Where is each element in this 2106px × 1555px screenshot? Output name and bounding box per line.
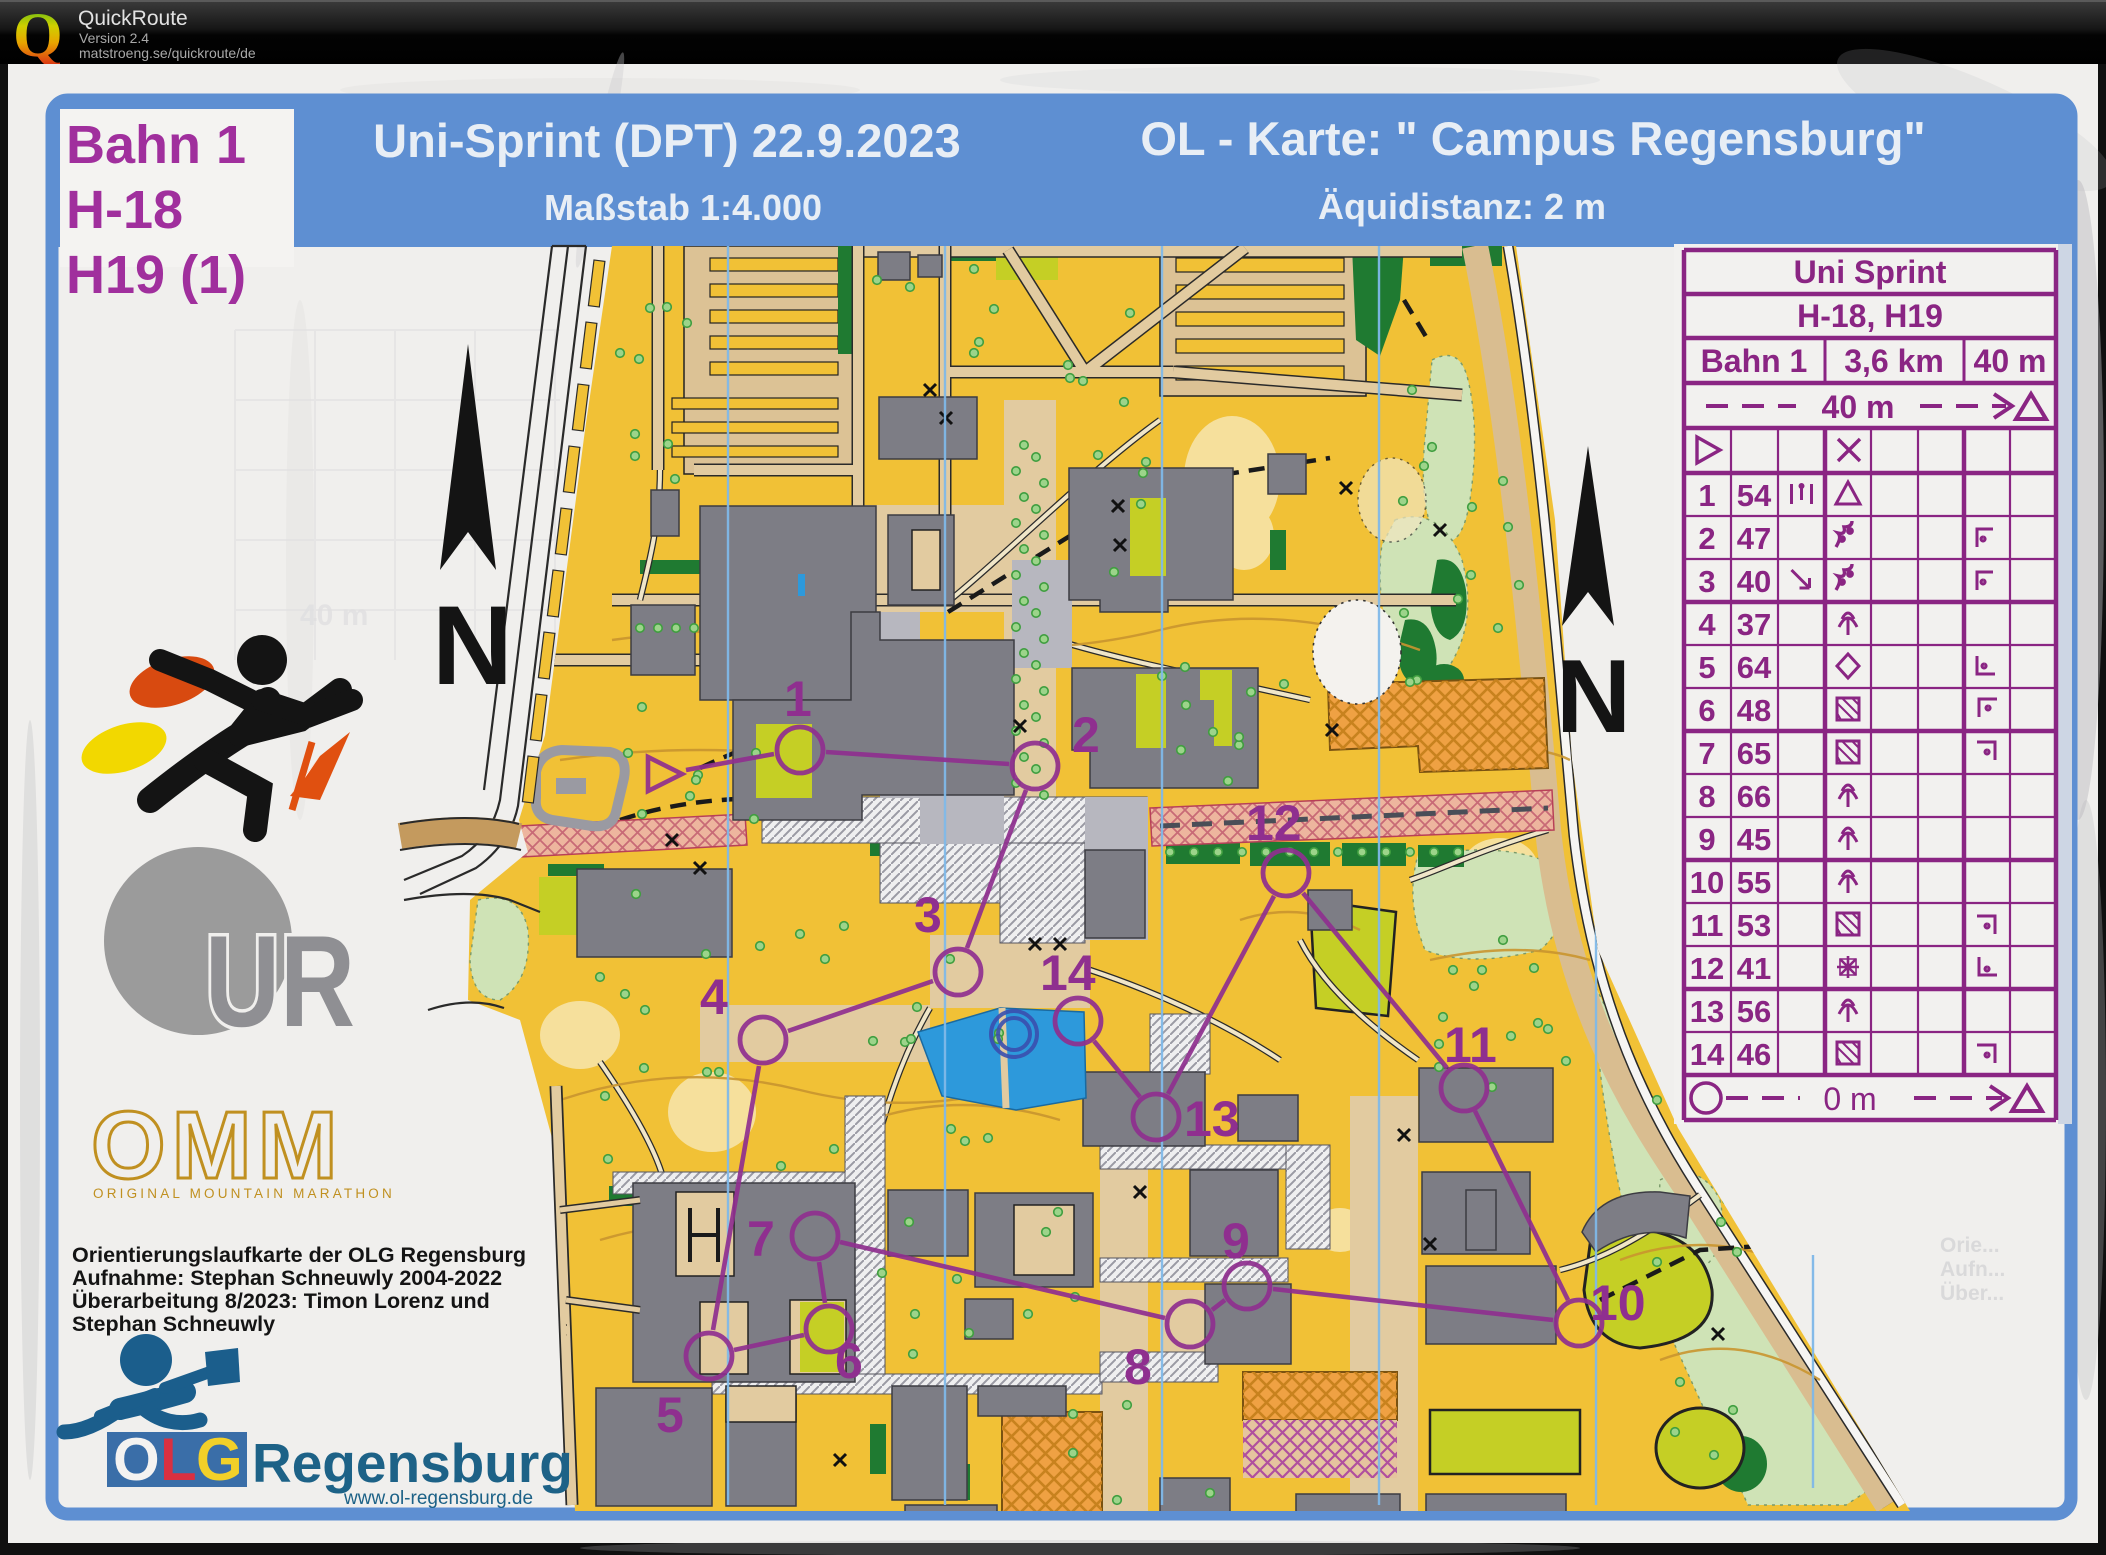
- svg-text:Bahn 1: Bahn 1: [1701, 343, 1808, 379]
- svg-text:14: 14: [1040, 945, 1096, 1001]
- svg-text:Aufnahme: Stephan Schneuwly 20: Aufnahme: Stephan Schneuwly 2004-2022: [72, 1266, 502, 1290]
- svg-text:Bahn 1: Bahn 1: [66, 115, 246, 175]
- svg-text:8: 8: [1698, 779, 1715, 814]
- svg-text:54: 54: [1737, 478, 1772, 513]
- svg-text:Stephan Schneuwly: Stephan Schneuwly: [72, 1312, 275, 1336]
- svg-text:Über...: Über...: [1940, 1282, 2004, 1305]
- svg-text:66: 66: [1737, 779, 1771, 814]
- svg-text:matstroeng.se/quickroute/de: matstroeng.se/quickroute/de: [79, 45, 256, 61]
- svg-text:Orie...: Orie...: [1940, 1234, 2000, 1257]
- svg-text:Aufn...: Aufn...: [1940, 1258, 2005, 1281]
- svg-text:4: 4: [700, 969, 728, 1025]
- svg-text:Überarbeitung 8/2023: Timon L: Überarbeitung 8/2023: Timon Lorenz und: [72, 1288, 490, 1313]
- svg-text:55: 55: [1737, 865, 1771, 900]
- svg-text:G: G: [196, 1426, 243, 1493]
- svg-text:Äquidistanz: 2 m: Äquidistanz: 2 m: [1318, 186, 1606, 227]
- svg-text:10: 10: [1690, 865, 1724, 900]
- svg-text:2: 2: [1698, 521, 1715, 556]
- svg-text:9: 9: [1222, 1213, 1250, 1269]
- svg-text:7: 7: [1698, 736, 1715, 771]
- svg-text:11: 11: [1444, 1017, 1497, 1073]
- svg-text:46: 46: [1737, 1037, 1771, 1072]
- svg-text:3,6 km: 3,6 km: [1844, 343, 1944, 379]
- svg-text:2: 2: [1072, 707, 1100, 763]
- svg-text:47: 47: [1737, 521, 1771, 556]
- svg-text:41: 41: [1737, 951, 1771, 986]
- svg-text:H-18: H-18: [66, 180, 183, 240]
- svg-text:5: 5: [656, 1387, 684, 1443]
- svg-text:12: 12: [1246, 795, 1302, 851]
- svg-text:11: 11: [1691, 908, 1724, 943]
- svg-text:N: N: [1556, 639, 1631, 755]
- svg-text:37: 37: [1737, 607, 1771, 642]
- svg-text:40: 40: [1737, 564, 1771, 599]
- svg-text:40 m: 40 m: [1974, 343, 2047, 379]
- svg-text:40 m: 40 m: [1822, 389, 1895, 425]
- svg-text:4: 4: [1698, 607, 1716, 642]
- svg-text:14: 14: [1690, 1037, 1725, 1072]
- svg-text:5: 5: [1698, 650, 1715, 685]
- svg-text:OMM: OMM: [91, 1092, 344, 1199]
- svg-text:9: 9: [1698, 822, 1715, 857]
- svg-text:Orientierungslaufkarte der OLG: Orientierungslaufkarte der OLG Regensbur…: [72, 1243, 526, 1267]
- svg-text:Uni-Sprint (DPT) 22.9.2023: Uni-Sprint (DPT) 22.9.2023: [373, 114, 961, 167]
- svg-text:OL - Karte: " Campus Regensbur: OL - Karte: " Campus Regensburg": [1140, 112, 1925, 165]
- svg-text:6: 6: [835, 1333, 863, 1389]
- svg-text:Version 2.4: Version 2.4: [79, 30, 149, 46]
- svg-text:3: 3: [1698, 564, 1715, 599]
- svg-text:53: 53: [1737, 908, 1771, 943]
- svg-text:10: 10: [1590, 1275, 1646, 1331]
- svg-text:Maßstab 1:4.000: Maßstab 1:4.000: [544, 187, 822, 228]
- svg-text:1: 1: [1698, 478, 1715, 513]
- svg-text:N: N: [432, 583, 513, 708]
- svg-text:0 m: 0 m: [1823, 1081, 1876, 1117]
- svg-text:40 m: 40 m: [300, 599, 368, 632]
- svg-text:www.ol-regensburg.de: www.ol-regensburg.de: [343, 1488, 533, 1509]
- svg-text:O: O: [113, 1426, 160, 1493]
- svg-text:12: 12: [1690, 951, 1724, 986]
- svg-text:1: 1: [784, 671, 812, 727]
- svg-text:3: 3: [914, 887, 942, 943]
- svg-text:ORIGINAL MOUNTAIN MARATHON: ORIGINAL MOUNTAIN MARATHON: [93, 1186, 395, 1201]
- svg-text:48: 48: [1737, 693, 1771, 728]
- svg-text:8: 8: [1124, 1339, 1152, 1395]
- svg-text:13: 13: [1690, 994, 1724, 1029]
- svg-text:7: 7: [747, 1211, 775, 1267]
- svg-text:Regensburg: Regensburg: [252, 1432, 573, 1494]
- svg-text:13: 13: [1184, 1091, 1240, 1147]
- svg-text:QuickRoute: QuickRoute: [78, 7, 188, 30]
- svg-text:45: 45: [1737, 822, 1771, 857]
- svg-text:6: 6: [1698, 693, 1715, 728]
- svg-text:UR: UR: [205, 908, 355, 1054]
- svg-text:56: 56: [1737, 994, 1771, 1029]
- svg-text:L: L: [160, 1426, 197, 1493]
- svg-text:65: 65: [1737, 736, 1771, 771]
- svg-text:H-18, H19: H-18, H19: [1797, 298, 1943, 334]
- svg-text:Uni Sprint: Uni Sprint: [1794, 254, 1947, 290]
- svg-text:64: 64: [1737, 650, 1772, 685]
- svg-text:H19 (1): H19 (1): [66, 245, 246, 305]
- svg-text:Q: Q: [13, 0, 63, 70]
